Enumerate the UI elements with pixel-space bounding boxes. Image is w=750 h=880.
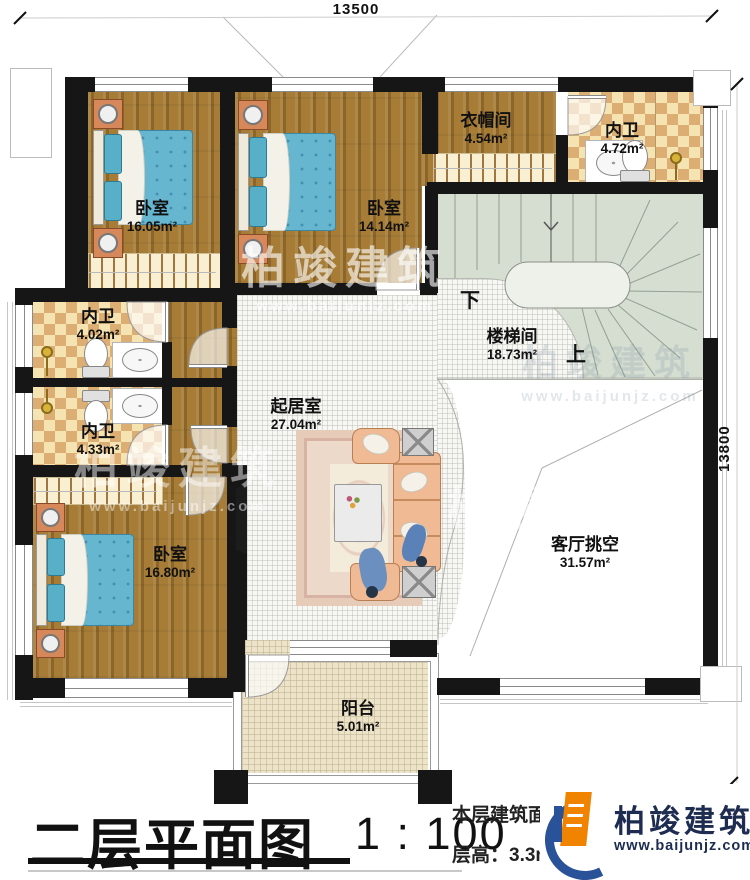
wall	[222, 366, 237, 427]
headboard	[93, 130, 104, 225]
lamp-icon	[41, 508, 60, 527]
wall	[15, 378, 237, 387]
room-area: 16.05m²	[127, 219, 177, 236]
wall	[222, 302, 237, 328]
room-name: 内卫	[77, 421, 120, 442]
window	[703, 228, 718, 338]
room-name: 内卫	[601, 120, 644, 141]
window	[500, 678, 645, 695]
ac-platform	[693, 70, 731, 106]
room-label-stair-hall: 楼梯间 18.73m²	[487, 326, 538, 364]
room-name: 卧室	[359, 198, 409, 219]
room-area: 27.04m²	[271, 417, 322, 434]
window	[15, 393, 33, 455]
nightstand	[238, 234, 268, 264]
room-area: 31.57m²	[551, 555, 619, 572]
person-head	[366, 586, 378, 598]
flower-vase	[344, 494, 362, 510]
wall	[420, 283, 437, 295]
ac-platform	[700, 666, 742, 702]
room-label-balcony: 阳台 5.01m²	[337, 698, 380, 736]
room-area: 4.54m²	[461, 131, 512, 148]
wall	[427, 182, 707, 194]
bed-sheet	[263, 133, 290, 231]
pillow	[47, 584, 65, 623]
living-room-floor-bulge	[437, 378, 465, 638]
room-label-cloakroom: 衣帽间 4.54m²	[461, 110, 512, 148]
bed-sheet	[61, 534, 88, 626]
headboard	[36, 534, 47, 626]
title-underline-thick	[28, 858, 350, 864]
room-area: 4.02m²	[77, 327, 120, 344]
room-area: 16.80m²	[145, 565, 195, 582]
window	[703, 108, 718, 170]
room-label-bedroom-bottom-left: 卧室 16.80m²	[145, 544, 195, 582]
room-name: 客厅挑空	[551, 534, 619, 555]
room-label-bedroom-top-mid: 卧室 14.14m²	[359, 198, 409, 236]
lamp-icon	[41, 634, 60, 653]
stair-up-label: 上	[566, 338, 586, 367]
room-name: 衣帽间	[461, 110, 512, 131]
dimension-height: 13800	[716, 425, 733, 472]
lamp-icon	[98, 104, 118, 124]
room-area: 5.01m²	[337, 719, 380, 736]
nightstand	[93, 99, 123, 129]
wall	[556, 135, 568, 182]
ac-platform	[10, 68, 52, 158]
room-area: 4.33m²	[77, 442, 120, 459]
closet-hangers-cloakroom	[433, 153, 558, 184]
wall	[225, 465, 247, 477]
sink	[122, 348, 158, 372]
closet-hangers-bedroom1	[88, 253, 222, 292]
stair-down-label: 下	[460, 284, 480, 313]
wall	[15, 288, 237, 302]
pillow	[104, 134, 122, 174]
window	[65, 678, 188, 698]
lamp-icon	[243, 239, 263, 259]
room-label-bath-mid-left: 内卫 4.02m²	[77, 306, 120, 344]
room-area: 14.14m²	[359, 219, 409, 236]
room-label-bedroom-top-left: 卧室 16.05m²	[127, 198, 177, 236]
floor-height-note: 层高：3.3m	[452, 840, 552, 867]
room-label-bath-top-right: 内卫 4.72m²	[601, 120, 644, 158]
room-name: 楼梯间	[487, 326, 538, 347]
pillow	[249, 186, 267, 227]
person-head	[416, 556, 427, 567]
coffee-table	[334, 484, 382, 542]
brand-logo: 柏竣建筑 www.baijunjz.com	[540, 784, 750, 878]
floor-plan-canvas: 卧室 16.05m² 卧室 14.14m² 衣帽间 4.54m² 内卫 4.72…	[0, 0, 750, 880]
room-name: 起居室	[271, 396, 322, 417]
window	[95, 77, 188, 92]
window	[15, 545, 33, 655]
room-area: 4.72m²	[601, 141, 644, 158]
closet-hangers-bedroom3	[33, 477, 163, 505]
logo-building-icon	[554, 806, 562, 842]
toilet-tank	[82, 366, 110, 378]
window-sill	[721, 110, 728, 670]
window-sill	[440, 698, 708, 705]
plan-title: 二层平面图	[30, 800, 315, 880]
wall	[227, 638, 245, 692]
window	[290, 640, 390, 655]
room-area: 18.73m²	[487, 347, 538, 364]
room-name: 阳台	[337, 698, 380, 719]
nightstand	[238, 100, 268, 130]
sink	[122, 394, 158, 418]
title-underline-thin	[28, 870, 462, 872]
wall	[422, 92, 438, 154]
room-label-void: 客厅挑空 31.57m²	[551, 534, 619, 572]
wall	[233, 283, 377, 295]
toilet-tank	[620, 170, 650, 182]
window	[272, 77, 373, 92]
headboard	[238, 133, 249, 231]
lamp-icon	[98, 233, 118, 253]
wall	[425, 186, 438, 293]
balcony-post	[418, 770, 452, 804]
bed-bedroom3	[36, 534, 134, 626]
nightstand	[93, 228, 123, 258]
side-table	[402, 428, 434, 456]
room-label-living-room: 起居室 27.04m²	[271, 396, 322, 434]
logo-url-text: www.baijunjz.com	[614, 838, 750, 854]
nightstand	[36, 503, 65, 532]
room-name: 内卫	[77, 306, 120, 327]
bedroom3-door-floor	[187, 465, 225, 477]
window-sill	[6, 302, 14, 700]
pillow	[104, 181, 122, 221]
tv-icon	[236, 484, 247, 554]
wall	[220, 77, 235, 293]
balcony-door-opening	[245, 640, 290, 655]
window	[445, 77, 558, 92]
wall	[65, 77, 88, 302]
lamp-icon	[243, 105, 263, 125]
wall	[558, 77, 713, 92]
logo-brand-text: 柏竣建筑	[614, 796, 750, 841]
watermark-url: www.baijunjz.com	[490, 388, 730, 405]
window	[15, 305, 33, 367]
nightstand	[36, 629, 65, 658]
wall	[373, 77, 445, 92]
bed-bedroom2	[238, 133, 336, 231]
wall	[15, 465, 187, 477]
room-name: 卧室	[145, 544, 195, 565]
bath-divider-line	[655, 92, 656, 182]
wall	[390, 640, 437, 657]
pillow	[47, 538, 65, 577]
room-label-bath-low-left: 内卫 4.33m²	[77, 421, 120, 459]
dimension-width: 13500	[324, 1, 388, 18]
room-name: 卧室	[127, 198, 177, 219]
pillow	[249, 137, 267, 178]
side-table	[402, 566, 436, 598]
balcony-post	[214, 770, 248, 804]
window-sill	[20, 701, 232, 708]
